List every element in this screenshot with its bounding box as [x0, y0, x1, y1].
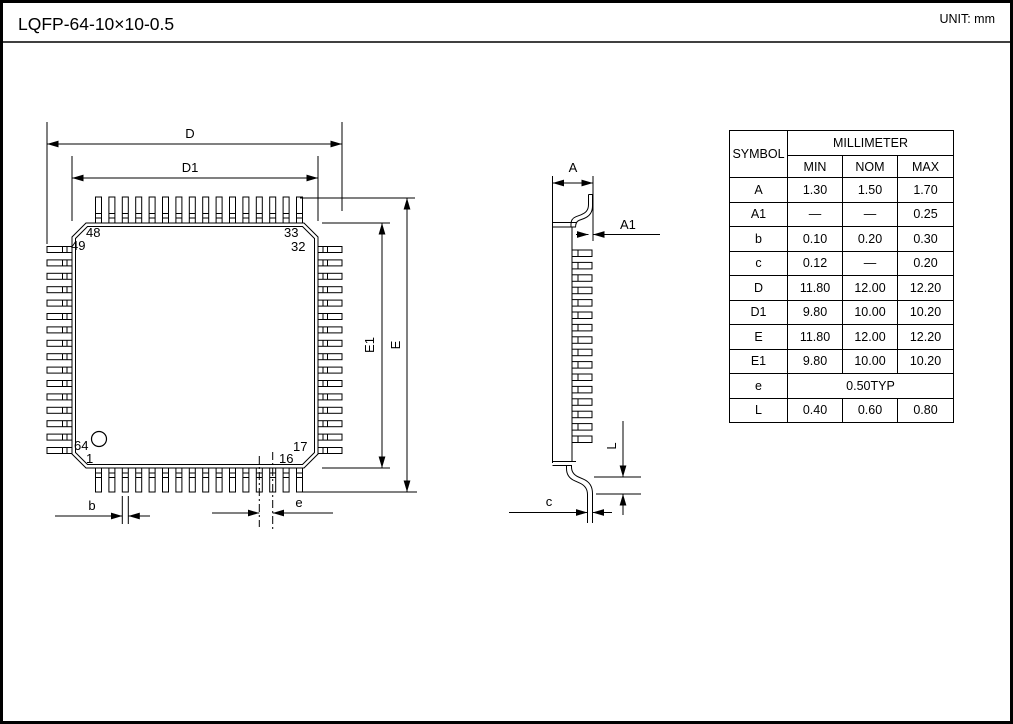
dim-label-c: c — [546, 494, 553, 509]
pin — [297, 197, 303, 223]
table-cell-symbol: A1 — [730, 202, 788, 227]
dim-label-A1: A1 — [620, 217, 636, 232]
table-cell-symbol: L — [730, 398, 788, 423]
pin — [318, 247, 342, 253]
table-header-millimeter: MILLIMETER — [788, 131, 954, 156]
package-body-inner-outline — [76, 227, 315, 465]
dim-label-e: e — [295, 495, 302, 510]
table-cell-min: 11.80 — [788, 325, 843, 350]
table-cell-nom: 0.60 — [843, 398, 898, 423]
pin1-indicator-circle — [92, 432, 107, 447]
pin — [572, 386, 592, 393]
table-row: E 11.80 12.00 12.20 — [730, 325, 954, 350]
table-cell-min: 9.80 — [788, 349, 843, 374]
pin — [47, 394, 72, 400]
table-row: L 0.40 0.60 0.80 — [730, 398, 954, 423]
package-body-outline — [72, 223, 318, 468]
pin — [109, 468, 115, 492]
table-cell-min: 0.40 — [788, 398, 843, 423]
pin — [47, 381, 72, 387]
table-row: b 0.10 0.20 0.30 — [730, 227, 954, 252]
pin — [270, 197, 276, 223]
table-row: E1 9.80 10.00 10.20 — [730, 349, 954, 374]
table-cell-nom: 0.20 — [843, 227, 898, 252]
pin — [47, 314, 72, 320]
pin — [47, 421, 72, 427]
dim-label-E: E — [388, 340, 403, 349]
table-cell-symbol: D1 — [730, 300, 788, 325]
pin — [216, 468, 222, 492]
pin — [216, 197, 222, 223]
pin — [318, 300, 342, 306]
pin — [189, 197, 195, 223]
pin — [318, 273, 342, 279]
pin — [572, 337, 592, 344]
pin — [47, 247, 72, 253]
table-cell-max: 0.80 — [898, 398, 954, 423]
pin — [572, 262, 592, 269]
pin — [96, 468, 102, 492]
table-cell-max: 12.20 — [898, 325, 954, 350]
table-row: A1 — — 0.25 — [730, 202, 954, 227]
side-bottom-lead — [567, 466, 588, 524]
pin — [318, 260, 342, 266]
table-cell-nom: 1.50 — [843, 178, 898, 203]
pin-number-48: 48 — [86, 225, 100, 240]
pin — [163, 468, 169, 492]
table-header-max: MAX — [898, 156, 954, 178]
pin-number-33: 33 — [284, 225, 298, 240]
dimensions-table: SYMBOL MILLIMETER MIN NOM MAX A 1.30 1.5… — [729, 130, 954, 423]
pin — [230, 468, 236, 492]
dim-label-E1: E1 — [362, 337, 377, 353]
pin — [318, 394, 342, 400]
pin-number-16: 16 — [279, 451, 293, 466]
table-row: D1 9.80 10.00 10.20 — [730, 300, 954, 325]
dim-label-L: L — [604, 442, 619, 449]
pin — [243, 468, 249, 492]
table-cell-symbol: e — [730, 374, 788, 399]
table-row: c 0.12 — 0.20 — [730, 251, 954, 276]
table-cell-symbol: c — [730, 251, 788, 276]
pin — [572, 300, 592, 307]
pin — [109, 197, 115, 223]
table-cell-symbol: A — [730, 178, 788, 203]
table-cell-max: 10.20 — [898, 349, 954, 374]
dim-label-A: A — [569, 160, 578, 175]
table-cell-symbol: E — [730, 325, 788, 350]
pin — [176, 468, 182, 492]
pin — [318, 448, 342, 454]
pin — [572, 436, 592, 443]
pin — [572, 324, 592, 331]
pin — [47, 448, 72, 454]
table-cell-max: 0.20 — [898, 251, 954, 276]
table-cell-nom: 10.00 — [843, 349, 898, 374]
table-header-row: SYMBOL MILLIMETER — [730, 131, 954, 156]
table-cell-typ: 0.50TYP — [788, 374, 954, 399]
table-cell-nom: 12.00 — [843, 276, 898, 301]
pin — [47, 340, 72, 346]
pin — [318, 367, 342, 373]
pin — [283, 468, 289, 492]
package-pins — [47, 197, 592, 492]
table-cell-max: 10.20 — [898, 300, 954, 325]
pin — [318, 407, 342, 413]
pin — [572, 275, 592, 282]
pin — [47, 367, 72, 373]
pin — [318, 421, 342, 427]
pin — [572, 411, 592, 418]
pin — [122, 197, 128, 223]
table-cell-min: 0.12 — [788, 251, 843, 276]
pin — [47, 327, 72, 333]
dim-label-b: b — [88, 498, 95, 513]
table-header-nom: NOM — [843, 156, 898, 178]
table-cell-min: 1.30 — [788, 178, 843, 203]
table-cell-max: 0.30 — [898, 227, 954, 252]
unit-label: UNIT: mm — [939, 12, 995, 26]
table-cell-nom: — — [843, 251, 898, 276]
table-row: e 0.50TYP — [730, 374, 954, 399]
pin — [572, 349, 592, 356]
pin — [149, 197, 155, 223]
pin — [47, 407, 72, 413]
table-cell-max: 0.25 — [898, 202, 954, 227]
pin — [318, 381, 342, 387]
pin-number-1: 1 — [86, 451, 93, 466]
dim-label-D1: D1 — [182, 160, 199, 175]
table-header-symbol: SYMBOL — [730, 131, 788, 178]
pin — [176, 197, 182, 223]
pin — [256, 197, 262, 223]
table-cell-max: 12.20 — [898, 276, 954, 301]
side-top-lead — [576, 195, 593, 228]
table-cell-nom: 10.00 — [843, 300, 898, 325]
pin — [189, 468, 195, 492]
drawing-sheet: LQFP-64-10×10-0.5 UNIT: mm 48 33 49 32 6… — [0, 0, 1013, 724]
pin — [47, 273, 72, 279]
pin-number-32: 32 — [291, 239, 305, 254]
pin — [47, 300, 72, 306]
pin — [243, 197, 249, 223]
table-row: A 1.30 1.50 1.70 — [730, 178, 954, 203]
pin — [122, 468, 128, 492]
pin — [96, 197, 102, 223]
pin — [47, 287, 72, 293]
side-bottom-lead — [572, 466, 593, 524]
table-cell-symbol: b — [730, 227, 788, 252]
table-header-min: MIN — [788, 156, 843, 178]
pin — [318, 340, 342, 346]
pin — [149, 468, 155, 492]
pin — [136, 468, 142, 492]
top-view — [72, 223, 318, 468]
pin — [47, 260, 72, 266]
page-title: LQFP-64-10×10-0.5 — [18, 14, 174, 34]
pin-number-17: 17 — [293, 439, 307, 454]
pin — [203, 197, 209, 223]
pin — [572, 250, 592, 257]
table-cell-min: 0.10 — [788, 227, 843, 252]
table-cell-min: 11.80 — [788, 276, 843, 301]
pin — [318, 434, 342, 440]
pin — [572, 424, 592, 431]
pin — [283, 197, 289, 223]
pin — [572, 312, 592, 319]
table-cell-min: 9.80 — [788, 300, 843, 325]
pin — [163, 197, 169, 223]
pin — [572, 399, 592, 406]
pin — [297, 468, 303, 492]
pin — [318, 327, 342, 333]
table-cell-symbol: E1 — [730, 349, 788, 374]
pin — [230, 197, 236, 223]
pin — [318, 354, 342, 360]
table-row: D 11.80 12.00 12.20 — [730, 276, 954, 301]
table-cell-min: — — [788, 202, 843, 227]
pin — [572, 374, 592, 381]
pin — [136, 197, 142, 223]
table-cell-symbol: D — [730, 276, 788, 301]
pin — [203, 468, 209, 492]
dim-label-D: D — [185, 126, 194, 141]
table-cell-nom: — — [843, 202, 898, 227]
pin — [572, 287, 592, 294]
table-cell-nom: 12.00 — [843, 325, 898, 350]
pin — [47, 354, 72, 360]
pin-number-49: 49 — [71, 238, 85, 253]
pin — [572, 362, 592, 369]
pin — [47, 434, 72, 440]
pin — [318, 314, 342, 320]
pin — [318, 287, 342, 293]
table-cell-max: 1.70 — [898, 178, 954, 203]
